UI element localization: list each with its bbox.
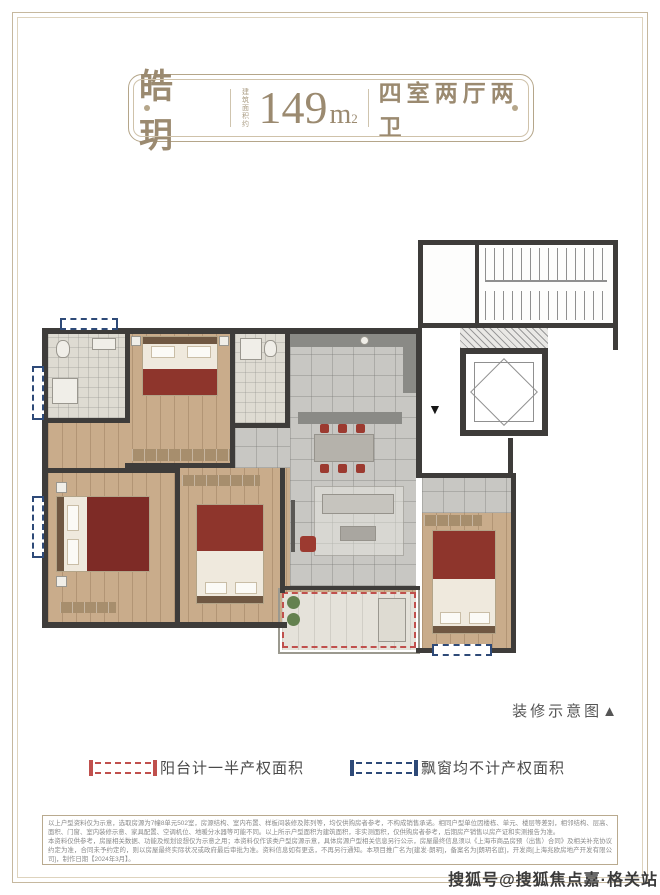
pillow: [67, 505, 79, 531]
nightstand: [56, 482, 67, 493]
pillow: [440, 612, 461, 624]
pillow: [205, 582, 227, 594]
legend-item-baywindow: 飘窗均不计产权面积: [356, 757, 565, 778]
wall: [42, 418, 130, 423]
shower: [52, 378, 78, 404]
blanket: [433, 531, 495, 579]
pillow: [235, 582, 257, 594]
sofa: [322, 494, 394, 514]
staircase: [485, 248, 607, 320]
bay-window: [432, 644, 492, 656]
kitchen-cabinet: [403, 347, 416, 393]
layout-label: 四室两厅两卫: [379, 74, 533, 142]
legend-label-balcony: 阳台计一半产权面积: [160, 757, 304, 778]
area-exponent: 2: [351, 112, 358, 125]
legend-item-balcony: 阳台计一半产权面积: [95, 757, 304, 778]
dining-table: [314, 434, 374, 462]
pillow: [187, 346, 211, 358]
stair-landing-wall: [475, 245, 479, 323]
plaque-content: 皓玥 建筑面积约 149m2 四室两厅两卫: [129, 59, 533, 157]
elevator-shaft: [460, 348, 548, 436]
wall: [230, 334, 235, 468]
wall: [125, 334, 130, 423]
bed: [432, 530, 496, 634]
kitchen-counter: [290, 334, 416, 347]
wall: [416, 473, 516, 478]
toilet: [56, 340, 70, 358]
pillow: [469, 612, 490, 624]
wall: [508, 438, 513, 476]
entry-floor: [422, 478, 511, 513]
nightstand: [219, 336, 229, 346]
kitchen-island: [298, 412, 402, 424]
headboard: [197, 596, 263, 603]
floor-plan: ▼: [30, 238, 630, 693]
dining-chair: [356, 464, 365, 473]
dining-chair: [320, 464, 329, 473]
stair-core: [418, 240, 618, 328]
disclaimer-paragraph-1: 以上户型资料仅为示意，选取房源为7幢8单元502室，房源结构、室内布置、样板间装…: [48, 819, 612, 837]
nightstand: [131, 336, 141, 346]
plaque-dot-icon: [512, 105, 518, 111]
dining-chair: [320, 424, 329, 433]
tv-console: [291, 500, 295, 552]
headboard: [143, 337, 217, 344]
wall: [175, 468, 180, 622]
wardrobe: [132, 449, 230, 461]
flyer-page: 皓玥 建筑面积约 149m2 四室两厅两卫 ▼: [0, 0, 660, 895]
sink: [92, 338, 116, 350]
balcony-area-symbol: [95, 762, 151, 774]
blanket: [87, 497, 149, 571]
dining-chair: [356, 424, 365, 433]
watermark: 搜狐号@搜狐焦点嘉·格关站: [448, 866, 658, 890]
legend-label-baywindow: 飘窗均不计产权面积: [421, 757, 565, 778]
wall: [280, 468, 285, 593]
bed: [196, 504, 264, 604]
nightstand: [56, 576, 67, 587]
pillow: [151, 346, 175, 358]
wall: [42, 622, 287, 628]
wardrobe: [424, 515, 482, 526]
balcony-half-area-outline: [282, 592, 416, 648]
unit-name: 皓玥: [139, 59, 220, 157]
wardrobe: [182, 475, 260, 486]
hallway-floor: [235, 428, 290, 468]
area-value: 149m2: [258, 85, 357, 131]
plan-caption: 装修示意图▲: [512, 700, 620, 721]
coffee-table: [340, 526, 376, 541]
plaque-dot-icon: [144, 105, 150, 111]
title-plaque: 皓玥 建筑面积约 149m2 四室两厅两卫: [128, 74, 534, 142]
stair-landing: [485, 280, 607, 291]
bay-window: [32, 496, 44, 558]
disclaimer-paragraph-2: 本资料仅供参考，房屋相关数据、功能及规划设想仅为示意之用；本资料仅作该类户型房源…: [48, 837, 612, 864]
dresser: [60, 602, 116, 613]
wall: [511, 473, 516, 653]
area-unit: m: [329, 101, 351, 129]
shaft-wall-hatch: [460, 328, 548, 348]
blanket: [143, 369, 217, 395]
pillow: [67, 539, 79, 565]
blanket: [197, 505, 263, 551]
headboard: [433, 626, 495, 633]
area-label: 建筑面积约: [241, 88, 249, 128]
plaque-divider: [230, 89, 231, 127]
bay-window: [60, 318, 118, 330]
dining-chair: [338, 464, 347, 473]
area-number: 149: [258, 85, 327, 131]
wall: [230, 423, 290, 428]
bed: [142, 336, 218, 396]
wall: [280, 586, 420, 590]
legend: 阳台计一半产权面积 飘窗均不计产权面积: [0, 757, 660, 778]
bed: [56, 496, 150, 572]
wall: [285, 334, 290, 428]
baywindow-area-symbol: [356, 762, 412, 774]
shower: [240, 338, 262, 360]
disclaimer-box: 以上户型资料仅为示意，选取房源为7幢8单元502室，房源结构、室内布置、样板间装…: [42, 815, 618, 865]
wall: [613, 328, 618, 350]
armchair: [300, 536, 316, 552]
plaque-divider: [368, 89, 369, 127]
wall: [42, 468, 180, 473]
headboard: [57, 497, 64, 571]
wall: [416, 328, 422, 478]
dining-chair: [338, 424, 347, 433]
toilet: [264, 340, 277, 357]
bay-window: [32, 366, 44, 420]
kitchen-sink: [360, 336, 369, 345]
entry-direction-marker: ▼: [428, 402, 442, 416]
